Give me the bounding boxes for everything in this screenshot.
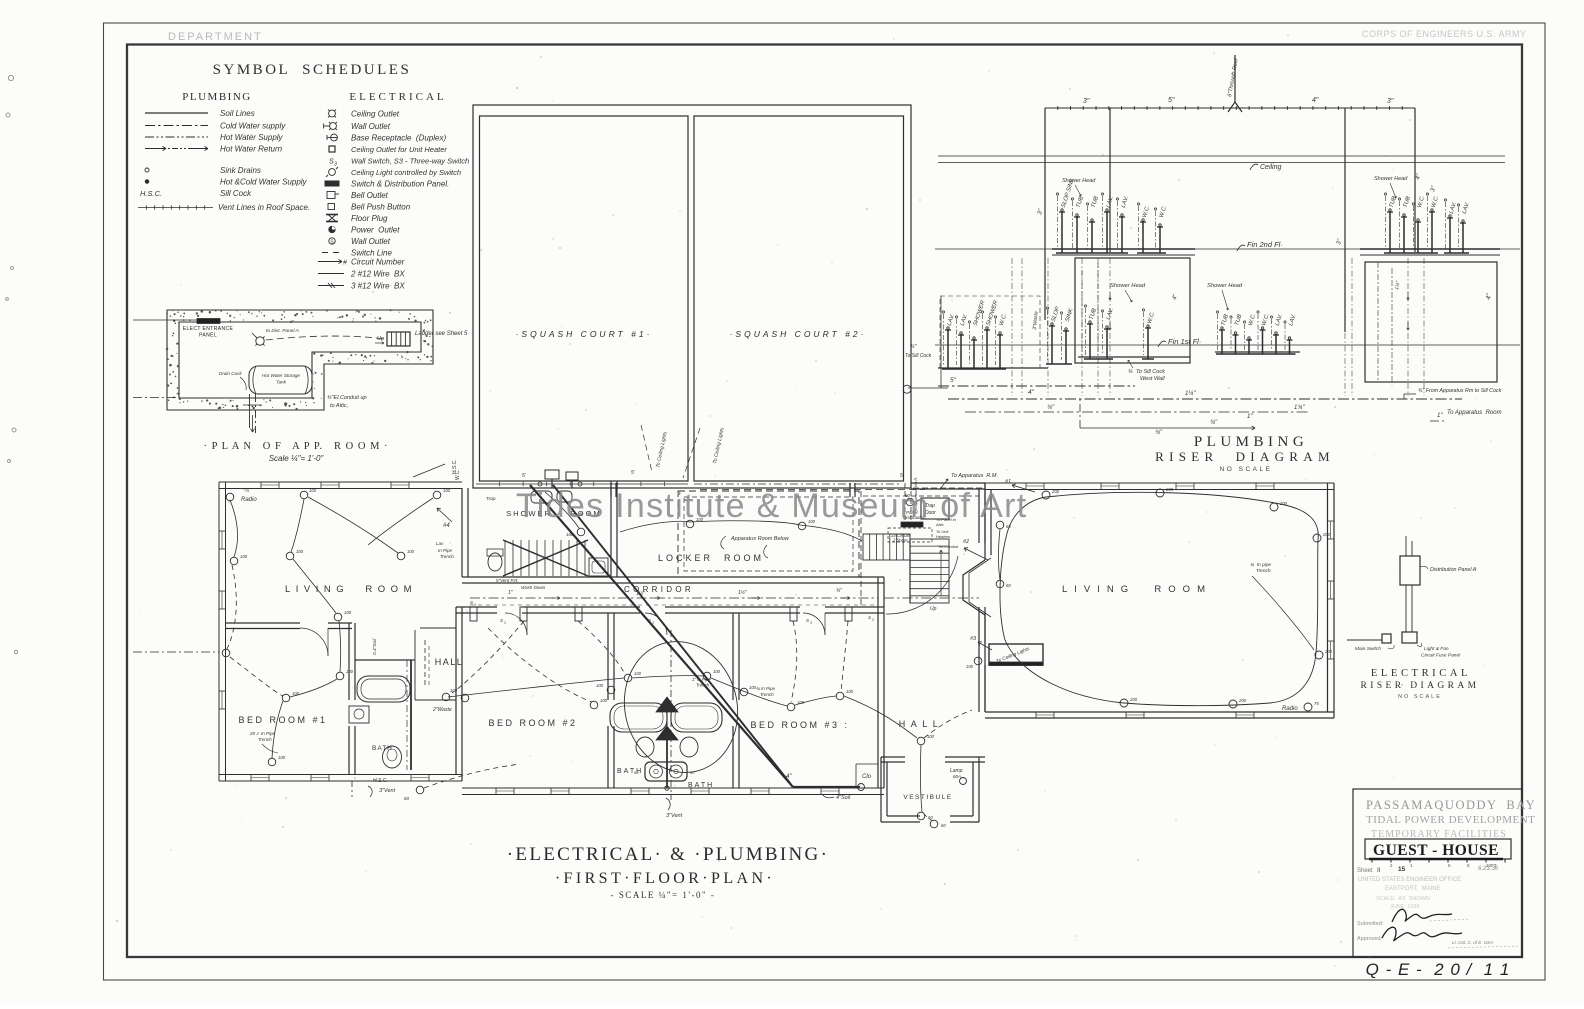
svg-text:Sink Drains: Sink Drains	[220, 166, 261, 175]
svg-text:Hot &Cold Water Supply: Hot &Cold Water Supply	[220, 178, 308, 187]
svg-text:3: 3	[810, 621, 812, 625]
svg-text:Tides Institute & Museum of Ar: Tides Institute & Museum of Art	[516, 487, 1027, 525]
svg-text:Circuit Number: Circuit Number	[351, 258, 405, 267]
svg-text:Radio: Radio	[241, 497, 257, 503]
svg-text:0.4"Soil: 0.4"Soil	[372, 638, 378, 655]
svg-text:#3: #3	[970, 636, 977, 642]
svg-text:Scale ¼"= 1'-0": Scale ¼"= 1'-0"	[269, 454, 325, 463]
svg-text:NO SCALE: NO SCALE	[1220, 466, 1273, 473]
svg-text:Bell Push Button: Bell Push Button	[351, 203, 411, 212]
svg-text:3: 3	[504, 621, 506, 625]
svg-text:Clo: Clo	[862, 774, 872, 780]
svg-text:To Sill Cock: To Sill Cock	[905, 353, 932, 359]
svg-text:100: 100	[344, 610, 352, 615]
svg-text:S: S	[500, 618, 503, 623]
svg-text:II: II	[1377, 867, 1381, 874]
svg-text:Switch & Distribution Panel.: Switch & Distribution Panel.	[351, 180, 449, 189]
svg-text:Drain Cock: Drain Cock	[219, 371, 242, 376]
svg-text:RISER DIAGRAM: RISER DIAGRAM	[1361, 681, 1480, 691]
svg-text:LOCKER ROOM: LOCKER ROOM	[658, 553, 764, 563]
svg-text:1½": 1½"	[738, 589, 747, 596]
svg-text:·ELECTRICAL· & ·PLUMBING·: ·ELECTRICAL· & ·PLUMBING·	[507, 844, 829, 865]
svg-text:Main Switch: Main Switch	[1355, 646, 1381, 652]
svg-text:#4: #4	[443, 523, 450, 529]
svg-text:VESTIBULE: VESTIBULE	[903, 794, 952, 801]
svg-text:3": 3"	[1083, 98, 1090, 105]
svg-text:Trap: Trap	[486, 496, 496, 502]
svg-text:TIDAL POWER DEVELOPMENT: TIDAL POWER DEVELOPMENT	[1366, 814, 1535, 826]
svg-text:Hot Water Return: Hot Water Return	[220, 145, 283, 154]
svg-text:15: 15	[1398, 866, 1406, 873]
svg-text:2"Waste: 2"Waste	[432, 707, 452, 713]
svg-text:5"Vent P.R.: 5"Vent P.R.	[496, 578, 519, 583]
svg-text:Lt. Col. C. of E. USA: Lt. Col. C. of E. USA	[1452, 940, 1493, 945]
svg-text:¾ In Pipe: ¾ In Pipe	[756, 686, 776, 691]
svg-text:200: 200	[1322, 532, 1331, 537]
svg-text:1¾": 1¾"	[1294, 405, 1305, 411]
svg-text:H.S.C.: H.S.C.	[140, 189, 162, 198]
svg-text:UNITED STATES ENGINEER OFFICE: UNITED STATES ENGINEER OFFICE	[1358, 877, 1461, 883]
svg-text:4": 4"	[1312, 97, 1319, 104]
svg-text:¾" From Apparatus Rm to Sill C: ¾" From Apparatus Rm to Sill Cock	[1418, 388, 1502, 394]
svg-text:Distribution Panel A: Distribution Panel A	[1430, 567, 1477, 573]
svg-text:HALL: HALL	[899, 719, 944, 729]
svg-text:Tel.Conduit: Tel.Conduit	[938, 544, 959, 549]
svg-text:Apparatus Room Below: Apparatus Room Below	[730, 536, 790, 542]
svg-text:·FIRST·FLOOR·PLAN·: ·FIRST·FLOOR·PLAN·	[555, 870, 775, 887]
svg-text:60A: 60A	[953, 774, 961, 779]
svg-text:#1: #1	[1005, 479, 1011, 485]
svg-text:BATH: BATH	[617, 768, 643, 775]
svg-text:Wall Outlet: Wall Outlet	[351, 122, 391, 131]
svg-text:100: 100	[450, 688, 458, 693]
svg-text:¾ In pipe: ¾ In pipe	[1250, 562, 1271, 568]
svg-text:NO SCALE: NO SCALE	[1398, 694, 1442, 700]
svg-text:1¼": 1¼"	[1185, 391, 1196, 397]
svg-text:SYMBOL SCHEDULES: SYMBOL SCHEDULES	[213, 62, 412, 78]
svg-text:1": 1"	[1247, 414, 1253, 420]
svg-text:CORPS OF ENGINEERS U.S. ARMY: CORPS OF ENGINEERS U.S. ARMY	[1362, 29, 1527, 39]
svg-text:#: #	[343, 260, 347, 267]
svg-text:20 J In Pipe: 20 J In Pipe	[249, 731, 276, 736]
svg-text:100: 100	[296, 549, 304, 554]
svg-text:Ladder see Sheet 5: Ladder see Sheet 5	[415, 331, 468, 337]
svg-text:BATH: BATH	[688, 782, 714, 789]
svg-text:100: 100	[278, 755, 286, 760]
svg-text:¾": ¾"	[910, 344, 918, 350]
svg-text:¾": ¾"	[1155, 430, 1163, 436]
svg-text:¾: ¾	[1128, 369, 1133, 375]
svg-text:Heaters: Heaters	[936, 534, 950, 539]
svg-text:Floor Plug: Floor Plug	[351, 214, 388, 223]
svg-text:·SQUASH COURT #1·: ·SQUASH COURT #1·	[516, 329, 653, 339]
svg-text:Base Receptacle (Duplex): Base Receptacle (Duplex)	[351, 134, 446, 143]
svg-text:200: 200	[1051, 489, 1060, 494]
svg-text:Fin 1st Fl·: Fin 1st Fl·	[1168, 337, 1201, 346]
svg-text:1": 1"	[1437, 413, 1443, 419]
svg-text:PLUMBING: PLUMBING	[1194, 434, 1308, 450]
svg-text:Trench: Trench	[760, 692, 774, 697]
svg-text:To Apparatus R.M.: To Apparatus R.M.	[951, 473, 998, 479]
svg-text:Wall Outlet: Wall Outlet	[351, 237, 391, 246]
svg-text:5": 5"	[950, 377, 957, 384]
svg-text:Submitted:: Submitted:	[1357, 921, 1384, 927]
svg-text:3: 3	[872, 618, 874, 622]
svg-text:100: 100	[240, 554, 248, 559]
svg-text:Hot Water Storage: Hot Water Storage	[262, 373, 300, 378]
svg-text:#2: #2	[963, 539, 969, 545]
svg-text:Circuit Fuse Panel: Circuit Fuse Panel	[1421, 653, 1461, 659]
svg-text:3: 3	[334, 162, 337, 168]
svg-text:Switch Line: Switch Line	[351, 249, 392, 258]
svg-text:200: 200	[1165, 487, 1174, 492]
svg-text:100: 100	[846, 689, 854, 694]
svg-text:2 Spare: 2 Spare	[892, 538, 908, 543]
svg-text:Shower Head: Shower Head	[1207, 283, 1243, 289]
svg-text:¾": ¾"	[1047, 405, 1055, 411]
svg-text:BED ROOM #1: BED ROOM #1	[238, 715, 327, 725]
svg-text:Q - E - 2 0 / 1 1: Q - E - 2 0 / 1 1	[1366, 960, 1511, 979]
svg-text:Vent Lines in Roof Space.: Vent Lines in Roof Space.	[218, 203, 310, 212]
svg-text:200: 200	[1279, 501, 1288, 506]
svg-text:Fin 2nd Fl·: Fin 2nd Fl·	[1247, 240, 1283, 249]
svg-text:3"Vent: 3"Vent	[666, 813, 683, 819]
svg-text:100: 100	[407, 549, 415, 554]
svg-text:Shower Head: Shower Head	[1110, 283, 1146, 289]
svg-text:Up: Up	[377, 336, 384, 342]
svg-text:Soil Lines: Soil Lines	[220, 109, 255, 118]
svg-text:Trench: Trench	[1256, 568, 1271, 574]
svg-text:PASSAMAQUODDY BAY: PASSAMAQUODDY BAY	[1366, 798, 1536, 812]
svg-text:200: 200	[1238, 698, 1247, 703]
svg-text:100: 100	[927, 734, 935, 739]
svg-text:Power Outlet: Power Outlet	[351, 226, 400, 235]
svg-text:3"Vent: 3"Vent	[379, 788, 396, 794]
svg-text:Cold Water supply: Cold Water supply	[220, 122, 286, 131]
svg-text:Shower Head: Shower Head	[1062, 178, 1096, 184]
svg-text:2 #12 Wire BX: 2 #12 Wire BX	[350, 270, 405, 279]
svg-text:Shower Head: Shower Head	[1374, 176, 1408, 182]
svg-text:S: S	[470, 600, 473, 605]
svg-text:Ceiling Light controlled by Sw: Ceiling Light controlled by Switch	[351, 168, 461, 177]
svg-text:ELECT ENTRANCE: ELECT ENTRANCE	[183, 326, 234, 332]
svg-text:Tank: Tank	[276, 380, 286, 385]
svg-text:100: 100	[443, 488, 451, 493]
svg-text:100: 100	[292, 691, 300, 696]
svg-text:to Dist. Panel A: to Dist. Panel A	[266, 328, 299, 334]
svg-text:60: 60	[634, 770, 639, 775]
svg-text:DEPARTMENT: DEPARTMENT	[168, 31, 263, 43]
svg-text:Wall Switch, S3 - Three-way Sw: Wall Switch, S3 - Three-way Switch	[351, 157, 469, 166]
svg-text:Lav: Lav	[436, 541, 444, 546]
svg-text:S: S	[806, 618, 809, 623]
svg-text:100: 100	[600, 698, 608, 703]
svg-text:H.S.C.: H.S.C.	[373, 778, 388, 784]
svg-text:GUEST - HOUSE: GUEST - HOUSE	[1373, 842, 1499, 859]
svg-text:S: S	[868, 615, 871, 620]
svg-text:¾": ¾"	[836, 588, 842, 594]
svg-text:ELECTRICAL: ELECTRICAL	[349, 91, 446, 103]
svg-text:100: 100	[309, 488, 317, 493]
svg-text:SCALE: AS SHOWN: SCALE: AS SHOWN	[1376, 896, 1430, 902]
svg-text:4": 4"	[1028, 389, 1035, 396]
svg-text:100: 100	[346, 669, 354, 674]
svg-text:100: 100	[634, 671, 642, 676]
svg-text:LIVING ROOM: LIVING ROOM	[285, 584, 417, 595]
svg-text:RISER DIAGRAM: RISER DIAGRAM	[1155, 449, 1335, 464]
svg-text:Approved:: Approved:	[1357, 936, 1383, 942]
svg-text:Trench: Trench	[258, 737, 272, 742]
svg-text:¾": ¾"	[1210, 420, 1218, 426]
svg-text:BED ROOM #3 :: BED ROOM #3 :	[750, 720, 849, 730]
svg-text:60: 60	[404, 796, 410, 801]
svg-text:3 #12 Wire BX: 3 #12 Wire BX	[351, 282, 405, 291]
svg-text:60: 60	[1006, 583, 1011, 588]
svg-text:60: 60	[941, 823, 946, 828]
svg-text:- SCALE ¼"= 1'-0" -: - SCALE ¼"= 1'-0" -	[611, 890, 716, 900]
svg-text:W.C.: W.C.	[455, 469, 461, 480]
svg-text:100: 100	[966, 664, 974, 669]
svg-text:To Sill Cock: To Sill Cock	[1136, 369, 1165, 375]
svg-text:5": 5"	[1168, 97, 1175, 104]
svg-text:PANEL: PANEL	[199, 333, 217, 339]
svg-text:200: 200	[1324, 649, 1333, 654]
svg-text:TEMPORARY FACILITIES: TEMPORARY FACILITIES	[1371, 829, 1507, 840]
svg-text:·SQUASH COURT #2·: ·SQUASH COURT #2·	[730, 329, 867, 339]
svg-text:4"Soil: 4"Soil	[836, 795, 851, 801]
svg-text:to Attic,: to Attic,	[330, 403, 348, 409]
svg-text:· P L A N O F A P P. R O: · P L A N O F A P P. R O O M ·	[203, 441, 388, 452]
svg-text:200: 200	[1129, 697, 1138, 702]
svg-text:100: 100	[596, 683, 604, 688]
svg-text:EASTPORT, MAINE: EASTPORT, MAINE	[1385, 886, 1441, 892]
svg-text:Ceiling: Ceiling	[1260, 164, 1282, 171]
svg-text:Up: Up	[930, 606, 937, 612]
svg-text:°75: °75	[243, 488, 250, 493]
svg-text:Light & Fan: Light & Fan	[1424, 646, 1449, 652]
svg-text:¾"El.Conduit up: ¾"El.Conduit up	[327, 395, 367, 401]
svg-text:3: 3	[474, 603, 476, 607]
svg-text:Ceiling Outlet: Ceiling Outlet	[351, 110, 400, 119]
svg-text:LIVING ROOM: LIVING ROOM	[1062, 584, 1212, 595]
svg-text:Bell Outlet: Bell Outlet	[351, 191, 389, 200]
svg-text:Radio: Radio	[1282, 706, 1298, 712]
svg-text:100: 100	[713, 669, 721, 674]
svg-text:Sheet: Sheet	[1357, 868, 1373, 874]
svg-text:Ceiling Outlet for Unit Heater: Ceiling Outlet for Unit Heater	[351, 145, 447, 154]
svg-text:3": 3"	[1387, 98, 1394, 105]
svg-text:JUNE 1936: JUNE 1936	[1390, 904, 1420, 910]
svg-text:100: 100	[797, 700, 805, 705]
svg-text:In Pipe: In Pipe	[438, 548, 453, 553]
svg-text:Trench.: Trench.	[440, 554, 455, 559]
svg-text:1": 1"	[508, 590, 513, 596]
svg-text:West Wall: West Wall	[1140, 376, 1165, 382]
svg-text:75: 75	[1314, 701, 1319, 706]
svg-text:HALL: HALL	[435, 657, 464, 667]
svg-text:PLUMBING: PLUMBING	[182, 91, 251, 103]
svg-text:Sill Cock: Sill Cock	[220, 189, 252, 198]
svg-text:BED ROOM #2: BED ROOM #2	[488, 718, 577, 728]
svg-text:ELECTRICAL: ELECTRICAL	[1371, 668, 1471, 679]
svg-text:To Apparatus Room: To Apparatus Room	[1447, 410, 1502, 416]
svg-text:6.23.36: 6.23.36	[1478, 866, 1499, 872]
svg-text:4": 4"	[786, 774, 792, 780]
svg-text:Wash Down: Wash Down	[521, 585, 546, 590]
